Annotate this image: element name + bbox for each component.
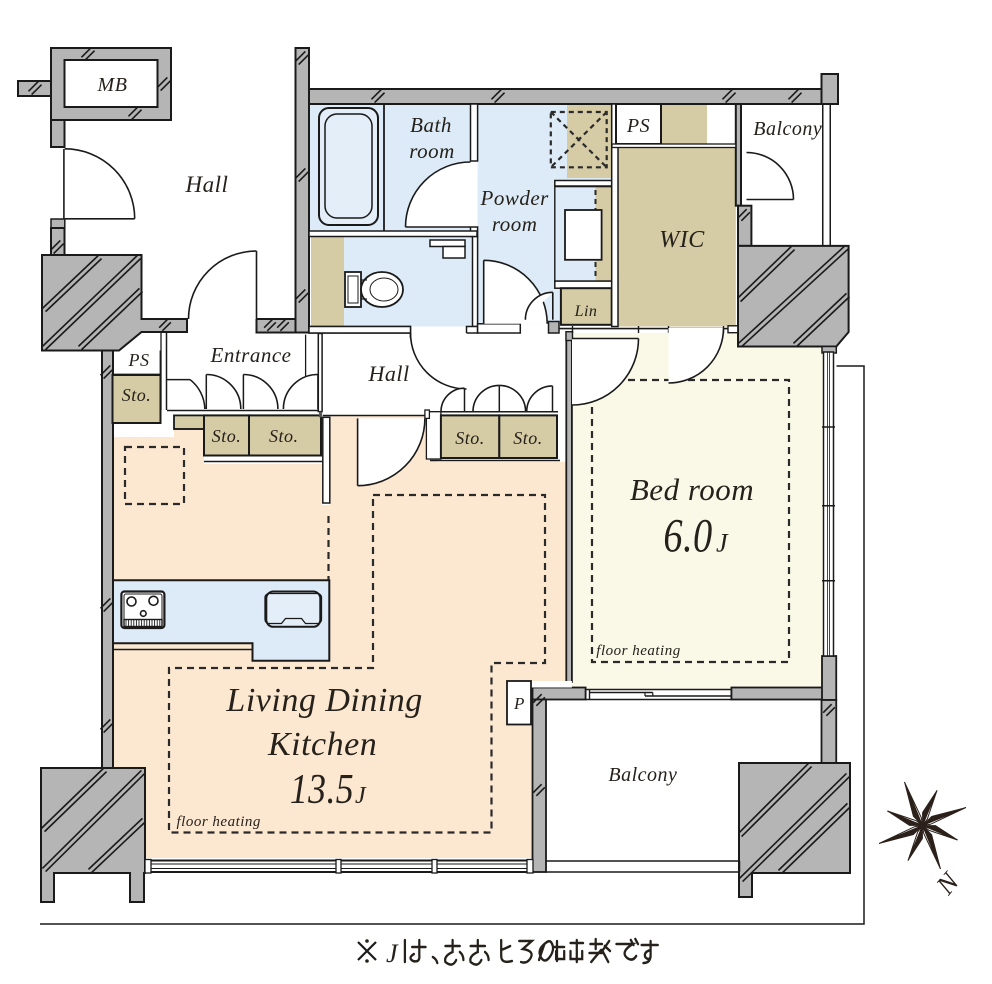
svg-text:Bath: Bath (410, 113, 452, 137)
svg-text:Sto.: Sto. (269, 426, 299, 446)
svg-text:Bed room: Bed room (630, 472, 754, 507)
svg-text:floor heating: floor heating (176, 814, 260, 830)
svg-text:Sto.: Sto. (513, 428, 543, 448)
svg-text:room: room (409, 139, 455, 163)
svg-text:Hall: Hall (185, 172, 229, 197)
svg-text:PS: PS (128, 350, 150, 370)
svg-text:Living Dining: Living Dining (225, 682, 422, 719)
svg-text:P: P (513, 694, 525, 713)
svg-text:Powder: Powder (480, 186, 550, 210)
svg-text:Sto.: Sto. (212, 426, 242, 446)
svg-text:floor heating: floor heating (596, 643, 680, 659)
svg-text:J: J (386, 939, 399, 968)
svg-text:room: room (492, 212, 538, 236)
svg-text:Sto.: Sto. (455, 428, 485, 448)
svg-text:MB: MB (97, 74, 128, 96)
svg-text:Balcony: Balcony (753, 118, 822, 140)
svg-text:6.0: 6.0 (663, 510, 712, 563)
svg-text:Kitchen: Kitchen (267, 726, 377, 763)
svg-text:13.5: 13.5 (290, 766, 354, 812)
svg-text:Lin: Lin (574, 303, 598, 320)
svg-text:PS: PS (626, 115, 650, 137)
svg-text:Entrance: Entrance (210, 343, 292, 367)
svg-text:J: J (716, 529, 729, 558)
svg-text:WIC: WIC (659, 227, 705, 253)
svg-text:Balcony: Balcony (608, 764, 677, 786)
svg-text:Sto.: Sto. (122, 385, 152, 405)
svg-text:Hall: Hall (367, 361, 409, 386)
svg-text:J: J (355, 783, 367, 809)
